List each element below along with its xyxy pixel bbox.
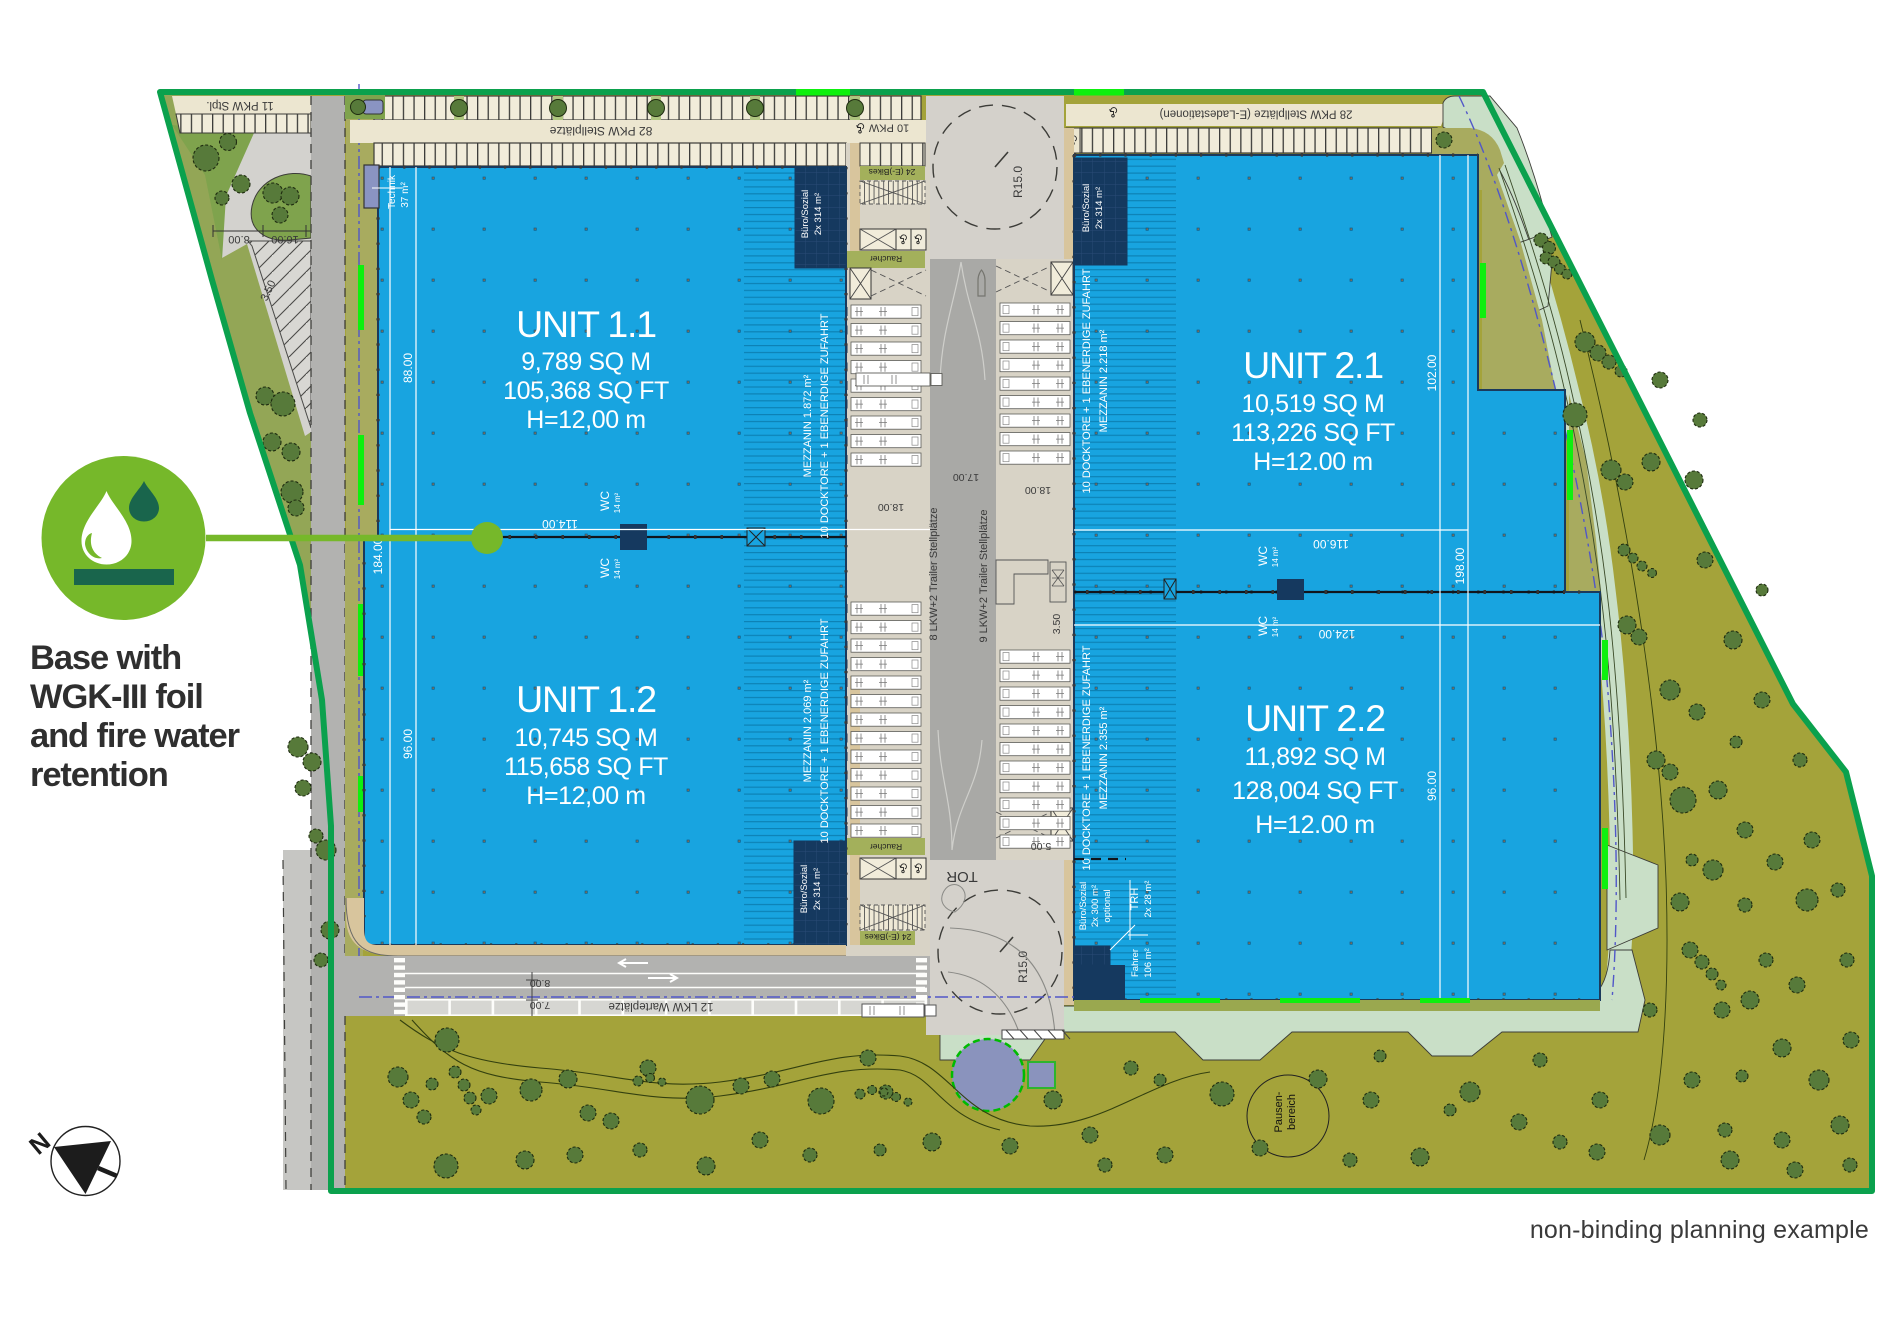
svg-text:Technik: Technik bbox=[387, 174, 398, 209]
svg-text:Büro/Sozial: Büro/Sozial bbox=[800, 190, 811, 239]
svg-text:H=12.00 m: H=12.00 m bbox=[1255, 811, 1374, 839]
svg-text:7.00: 7.00 bbox=[530, 999, 551, 1011]
svg-text:11 PKW Stpl.: 11 PKW Stpl. bbox=[206, 99, 274, 111]
svg-text:UNIT 2.1: UNIT 2.1 bbox=[1243, 344, 1383, 386]
svg-text:Raucher: Raucher bbox=[870, 254, 902, 264]
svg-text:Büro/Sozial: Büro/Sozial bbox=[1081, 184, 1092, 233]
svg-text:113,226 SQ FT: 113,226 SQ FT bbox=[1231, 419, 1395, 447]
svg-text:8.00: 8.00 bbox=[228, 233, 249, 245]
svg-text:82 PKW Stellplätze: 82 PKW Stellplätze bbox=[549, 124, 652, 138]
svg-text:TOR: TOR bbox=[946, 868, 978, 885]
svg-text:114.00: 114.00 bbox=[542, 517, 578, 531]
svg-text:10,519 SQ M: 10,519 SQ M bbox=[1242, 390, 1385, 418]
svg-text:17.00: 17.00 bbox=[953, 471, 979, 483]
svg-text:12 LKW Warteplätze: 12 LKW Warteplätze bbox=[608, 1000, 713, 1012]
svg-text:optional: optional bbox=[1102, 889, 1113, 922]
svg-text:H=12,00 m: H=12,00 m bbox=[526, 406, 645, 434]
svg-text:UNIT 2.2: UNIT 2.2 bbox=[1245, 697, 1385, 739]
svg-text:10 DOCKTORE + 1 EBENERDIGE ZUF: 10 DOCKTORE + 1 EBENERDIGE ZUFAHRT bbox=[1081, 645, 1093, 870]
svg-text:14 m²: 14 m² bbox=[1271, 616, 1280, 637]
svg-text:96.00: 96.00 bbox=[1425, 771, 1439, 801]
svg-text:9,789 SQ M: 9,789 SQ M bbox=[521, 348, 650, 376]
svg-text:MEZZANIN 1.872 m²: MEZZANIN 1.872 m² bbox=[802, 374, 814, 477]
svg-text:Büro/Sozial: Büro/Sozial bbox=[799, 865, 810, 914]
svg-text:H=12,00 m: H=12,00 m bbox=[526, 782, 645, 810]
svg-text:10 PKW: 10 PKW bbox=[868, 122, 909, 134]
svg-text:retention: retention bbox=[30, 756, 168, 794]
svg-text:bereich: bereich bbox=[1286, 1094, 1298, 1130]
svg-text:10 DOCKTORE + 1 EBENERDIGE ZUF: 10 DOCKTORE + 1 EBENERDIGE ZUFAHRT bbox=[819, 618, 831, 843]
svg-text:2x 314 m²: 2x 314 m² bbox=[1094, 187, 1105, 229]
svg-text:115,658 SQ FT: 115,658 SQ FT bbox=[504, 753, 668, 781]
svg-text:18.00: 18.00 bbox=[878, 501, 904, 513]
svg-text:3.50: 3.50 bbox=[1051, 614, 1063, 635]
svg-text:WC: WC bbox=[1256, 616, 1270, 636]
svg-text:MEZZANIN 2.069 m²: MEZZANIN 2.069 m² bbox=[802, 679, 814, 782]
svg-text:14 m²: 14 m² bbox=[613, 492, 622, 513]
svg-text:102.00: 102.00 bbox=[1425, 354, 1439, 391]
svg-text:2x 300 m²: 2x 300 m² bbox=[1090, 885, 1101, 927]
svg-text:5.00: 5.00 bbox=[1031, 840, 1052, 852]
svg-text:and fire water: and fire water bbox=[30, 717, 240, 755]
svg-text:106 m²: 106 m² bbox=[1143, 948, 1154, 978]
svg-text:MEZZANIN 2.355 m²: MEZZANIN 2.355 m² bbox=[1098, 706, 1110, 809]
svg-text:H=12.00 m: H=12.00 m bbox=[1253, 448, 1372, 476]
svg-text:9 LKW+2 Trailer Stellplätze: 9 LKW+2 Trailer Stellplätze bbox=[978, 510, 990, 643]
svg-text:18.00: 18.00 bbox=[1025, 484, 1051, 496]
svg-text:2x 314 m²: 2x 314 m² bbox=[813, 193, 824, 235]
svg-text:WGK-III foil: WGK-III foil bbox=[30, 678, 203, 716]
svg-text:UNIT 1.2: UNIT 1.2 bbox=[516, 678, 656, 720]
svg-text:Base with: Base with bbox=[30, 639, 181, 677]
svg-text:Fahrer: Fahrer bbox=[1130, 949, 1141, 977]
svg-text:14 m²: 14 m² bbox=[1271, 546, 1280, 567]
svg-text:10 DOCKTORE + 1 EBENERDIGE ZUF: 10 DOCKTORE + 1 EBENERDIGE ZUFAHRT bbox=[1081, 268, 1093, 493]
svg-text:11,892 SQ M: 11,892 SQ M bbox=[1244, 743, 1385, 771]
svg-text:Büro/Sozial: Büro/Sozial bbox=[1078, 882, 1089, 931]
svg-text:198.00: 198.00 bbox=[1453, 547, 1467, 584]
svg-text:UNIT 1.1: UNIT 1.1 bbox=[516, 303, 656, 345]
svg-text:MEZZANIN 2.218 m²: MEZZANIN 2.218 m² bbox=[1098, 329, 1110, 432]
svg-text:10 DOCKTORE + 1 EBENERDIGE ZUF: 10 DOCKTORE + 1 EBENERDIGE ZUFAHRT bbox=[819, 313, 831, 538]
svg-text:105,368 SQ FT: 105,368 SQ FT bbox=[503, 377, 669, 405]
svg-text:WC: WC bbox=[598, 558, 612, 578]
svg-text:128,004 SQ FT: 128,004 SQ FT bbox=[1232, 777, 1398, 805]
svg-text:Pausen-: Pausen- bbox=[1273, 1091, 1285, 1132]
svg-text:WC: WC bbox=[1256, 546, 1270, 566]
svg-text:184.00: 184.00 bbox=[371, 537, 385, 574]
svg-text:124.00: 124.00 bbox=[1318, 627, 1355, 641]
svg-text:TRH: TRH bbox=[1129, 888, 1141, 911]
svg-text:96.00: 96.00 bbox=[401, 729, 415, 759]
svg-text:24 (E-)Bikes: 24 (E-)Bikes bbox=[865, 932, 912, 942]
svg-text:16.00: 16.00 bbox=[271, 233, 299, 245]
svg-text:2x 28 m²: 2x 28 m² bbox=[1143, 881, 1154, 918]
svg-text:non-binding planning example: non-binding planning example bbox=[1530, 1216, 1869, 1244]
svg-text:10,745 SQ M: 10,745 SQ M bbox=[515, 724, 658, 752]
svg-text:2x 314 m²: 2x 314 m² bbox=[812, 868, 823, 910]
svg-text:116.00: 116.00 bbox=[1313, 537, 1349, 551]
svg-text:37 m²: 37 m² bbox=[400, 182, 411, 208]
svg-text:WC: WC bbox=[598, 491, 612, 511]
svg-text:88.00: 88.00 bbox=[401, 353, 415, 383]
svg-text:14 m²: 14 m² bbox=[613, 558, 622, 579]
svg-text:24 (E-)Bikes: 24 (E-)Bikes bbox=[869, 167, 916, 177]
svg-text:8 LKW+2 Trailer Stellplätze: 8 LKW+2 Trailer Stellplätze bbox=[928, 508, 940, 641]
svg-text:8.00: 8.00 bbox=[530, 977, 551, 989]
svg-text:R15.0: R15.0 bbox=[1011, 166, 1025, 198]
svg-text:R15.0: R15.0 bbox=[1016, 951, 1030, 983]
svg-text:28 PKW Stellplätze (E-Ladestat: 28 PKW Stellplätze (E-Ladestationen) bbox=[1159, 108, 1352, 120]
svg-text:Raucher: Raucher bbox=[870, 842, 902, 852]
